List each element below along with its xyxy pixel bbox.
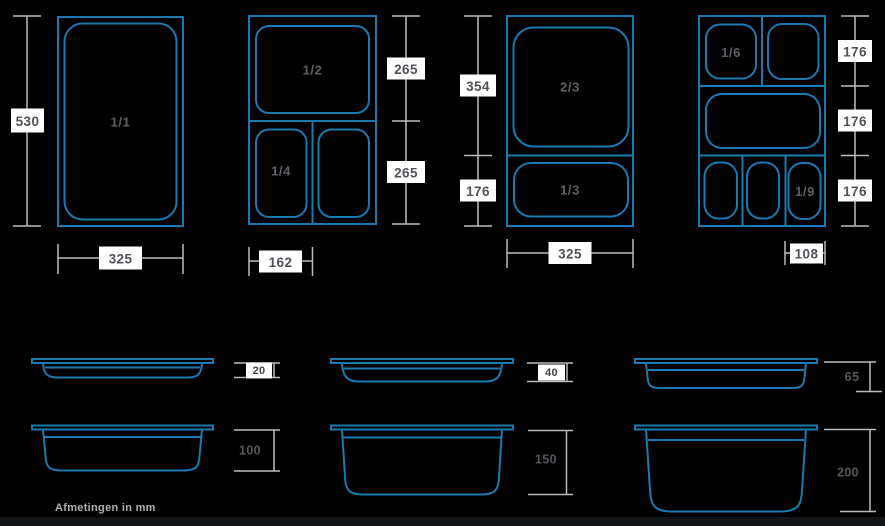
- pan-size-label: 1/6: [721, 45, 741, 60]
- top-view-gn-1-6-1-9: 1/6 1/9 176 176 176 108: [699, 16, 872, 265]
- pan-size-label: 2/3: [560, 80, 580, 95]
- pan-flange: [635, 359, 817, 363]
- bottom-height-dimension-value: 265: [394, 166, 418, 181]
- pan-inner-rect-third: [706, 94, 820, 148]
- pan-flange: [32, 426, 213, 430]
- pan-body: [646, 430, 806, 512]
- row1-dimension-value: 176: [843, 45, 867, 60]
- top-view-gn-1-2-1-4: 1/2 1/4 265 265 162: [249, 16, 425, 276]
- depth-dimension-value: 100: [239, 444, 261, 458]
- pan-body: [646, 363, 806, 388]
- depth-dimension-value: 40: [545, 367, 558, 379]
- top-height-dimension-value: 265: [394, 62, 418, 77]
- top-view-gn-1-1: 1/1 530 325: [11, 16, 183, 274]
- side-view-depth-150: 150: [331, 426, 573, 495]
- pan-inner-rect-ninth-middle: [747, 163, 779, 219]
- pan-size-label: 1/1: [111, 115, 131, 130]
- top-view-gn-2-3-1-3: 2/3 1/3 354 176 325: [460, 16, 633, 268]
- pan-size-label: 1/4: [271, 164, 291, 179]
- pan-size-label: 1/9: [795, 184, 815, 199]
- width-dimension-value: 162: [269, 255, 293, 270]
- gastronorm-size-diagram: 1/1 530 325 1/2 1/4 265 265 162 2/3 1/3 …: [0, 0, 885, 526]
- row3-dimension-value: 176: [843, 184, 867, 199]
- side-view-depth-200: 200: [635, 426, 876, 512]
- row2-dimension-value: 176: [843, 114, 867, 129]
- width-dimension-value: 325: [109, 252, 133, 267]
- depth-dimension-value: 20: [253, 365, 266, 377]
- depth-dimension-value: 200: [837, 466, 859, 480]
- pan-body: [342, 363, 502, 382]
- side-view-depth-100: 100: [32, 426, 280, 472]
- height-dimension-line: [392, 16, 420, 224]
- pan-flange: [32, 359, 213, 363]
- pan-flange: [331, 359, 513, 363]
- side-view-depth-65: 65: [635, 359, 882, 392]
- pan-body: [43, 430, 202, 471]
- depth-dimension-value: 150: [535, 453, 557, 467]
- pan-body: [43, 363, 202, 378]
- pan-divider-lines: [249, 121, 376, 224]
- height-dimension-value: 530: [16, 114, 40, 129]
- width-dimension-value: 325: [558, 247, 582, 262]
- bottom-divider-bar: [0, 517, 885, 526]
- top-height-dimension-value: 354: [466, 79, 490, 94]
- width-dimension-value: 108: [795, 247, 819, 262]
- pan-flange: [635, 426, 817, 430]
- pan-size-label: 1/2: [303, 63, 323, 78]
- pan-inner-rect-quarter-right: [319, 130, 370, 218]
- depth-dimension-value: 65: [845, 370, 860, 384]
- pan-flange: [331, 426, 513, 430]
- pan-body: [342, 430, 502, 495]
- bottom-height-dimension-value: 176: [466, 184, 490, 199]
- side-view-depth-20: 20: [32, 359, 280, 379]
- pan-inner-rect-sixth-right: [768, 24, 819, 79]
- pan-size-label: 1/3: [560, 183, 580, 198]
- side-view-depth-40: 40: [331, 359, 573, 382]
- units-note: Afmetingen in mm: [55, 502, 156, 514]
- pan-inner-rect-ninth-left: [705, 163, 738, 219]
- diagram-svg: 1/1 530 325 1/2 1/4 265 265 162 2/3 1/3 …: [0, 0, 885, 526]
